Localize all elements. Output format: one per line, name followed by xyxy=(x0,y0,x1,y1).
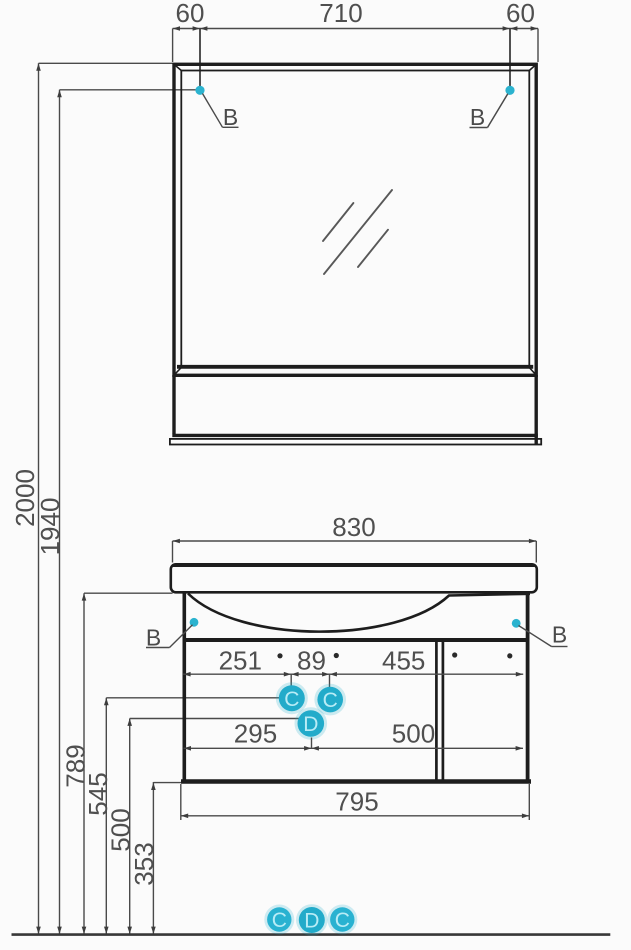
svg-text:455: 455 xyxy=(382,646,425,676)
svg-text:60: 60 xyxy=(506,0,535,28)
svg-text:D: D xyxy=(303,713,318,736)
svg-text:C: C xyxy=(335,909,350,932)
svg-text:60: 60 xyxy=(176,0,205,28)
svg-text:1940: 1940 xyxy=(35,498,65,556)
svg-text:353: 353 xyxy=(129,842,159,885)
svg-text:251: 251 xyxy=(219,646,262,676)
svg-text:C: C xyxy=(284,688,299,711)
svg-text:295: 295 xyxy=(234,719,277,749)
svg-text:830: 830 xyxy=(332,512,375,542)
svg-text:B: B xyxy=(552,622,567,648)
svg-text:C: C xyxy=(323,689,338,712)
svg-text:B: B xyxy=(223,104,238,130)
svg-text:710: 710 xyxy=(319,0,362,28)
svg-text:B: B xyxy=(146,624,161,650)
svg-text:D: D xyxy=(304,910,319,933)
svg-text:500: 500 xyxy=(392,719,435,749)
svg-text:795: 795 xyxy=(335,787,378,817)
svg-text:89: 89 xyxy=(297,646,326,676)
svg-text:B: B xyxy=(470,104,485,130)
svg-text:C: C xyxy=(272,909,287,932)
